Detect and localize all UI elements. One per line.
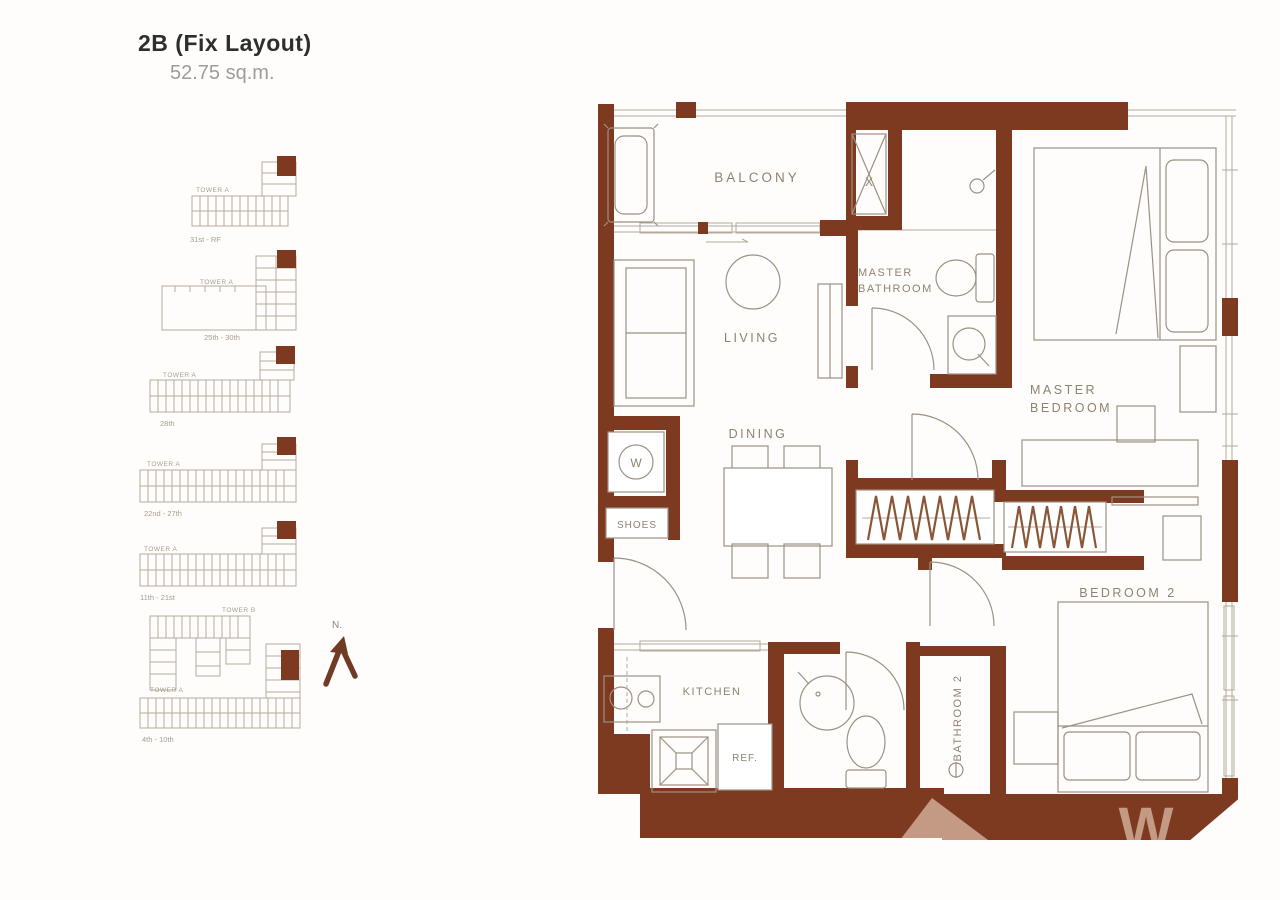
floor-plan-page: 2B (Fix Layout) 52.75 sq.m. TOWER A 31st… xyxy=(0,0,1280,900)
shoes-label: SHOES xyxy=(617,520,657,531)
washer-unit: W xyxy=(608,432,664,492)
key-plan-5: TOWER A 11th - 21st xyxy=(140,521,296,602)
highlighted-unit xyxy=(277,437,296,455)
kitchen-label: KITCHEN xyxy=(683,686,742,698)
floors-label: 22nd - 27th xyxy=(144,509,182,518)
master-bedroom-fixtures xyxy=(1022,148,1216,505)
master-bedroom-label-line1: MASTER xyxy=(1030,383,1097,397)
bedroom2-label: BEDROOM 2 xyxy=(1079,586,1177,600)
master-bathroom-label-line1: MASTER xyxy=(858,267,913,279)
floors-label: 31st - RF xyxy=(190,235,221,244)
floors-label: 11th - 21st xyxy=(140,593,176,602)
shaft-label: X xyxy=(865,175,873,189)
master-bathroom-label-line2: BATHROOM xyxy=(858,283,933,295)
north-label: N. xyxy=(332,620,342,631)
floors-label: 25th - 30th xyxy=(204,333,240,342)
highlighted-unit xyxy=(281,650,299,680)
washer-label: W xyxy=(630,456,642,470)
walls xyxy=(598,102,1238,842)
highlighted-unit xyxy=(277,156,296,176)
watermark-letter: W xyxy=(1119,796,1174,861)
highlighted-unit xyxy=(277,521,296,539)
bedroom2-fixtures xyxy=(1014,602,1208,792)
master-bathroom-fixtures xyxy=(936,170,996,374)
dining-fixtures xyxy=(724,446,832,578)
key-plan-3: TOWER A 28th xyxy=(150,346,295,428)
shaft xyxy=(852,134,886,214)
room-labels: BALCONY LIVING DINING MASTER BATHROOM MA… xyxy=(617,170,1177,764)
dining-label: DINING xyxy=(729,427,788,441)
key-plan-1: TOWER A 31st - RF xyxy=(190,156,296,244)
floors-label: 4th - 10th xyxy=(142,735,174,744)
tower-label: TOWER A xyxy=(144,546,178,553)
highlighted-unit xyxy=(277,250,296,268)
floor-plan-canvas: TOWER A 31st - RF TOWER A 25th - 30th TO… xyxy=(0,0,1280,900)
key-plan-4: TOWER A 22nd - 27th xyxy=(140,437,296,518)
ref-label: REF. xyxy=(732,753,758,764)
living-label: LIVING xyxy=(724,331,780,345)
tower-label: TOWER A xyxy=(163,372,197,379)
master-bedroom-label-line2: BEDROOM xyxy=(1030,401,1112,415)
floors-label: 28th xyxy=(160,419,175,428)
tower-label: TOWER B xyxy=(222,607,256,614)
north-arrow: N. xyxy=(326,620,355,684)
bathroom2-fixtures xyxy=(798,672,963,788)
bathroom2-label: BATHROOM 2 xyxy=(952,675,964,762)
tower-label: TOWER A xyxy=(150,687,184,694)
tower-label: TOWER A xyxy=(200,279,234,286)
key-plan-2: TOWER A 25th - 30th xyxy=(162,250,296,342)
highlighted-unit xyxy=(276,346,295,364)
tower-label: TOWER A xyxy=(196,187,230,194)
balcony-label: BALCONY xyxy=(714,170,800,185)
tower-label: TOWER A xyxy=(147,461,181,468)
key-plan-6: TOWER B xyxy=(150,607,256,690)
